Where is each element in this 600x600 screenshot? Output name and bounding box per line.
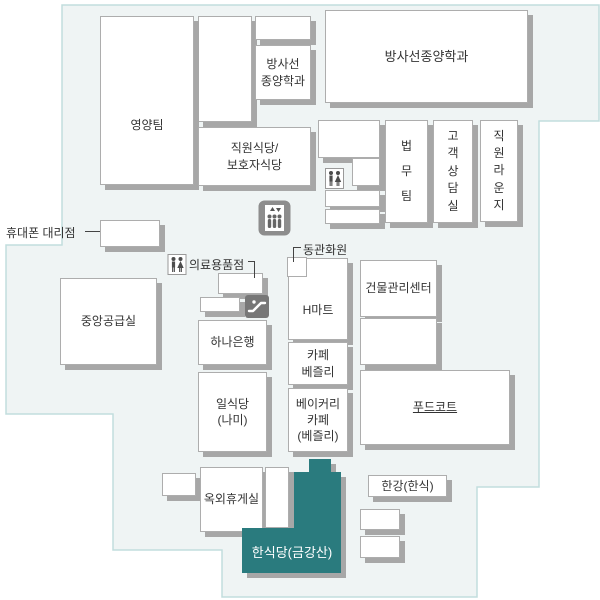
restroom-icon xyxy=(325,168,344,189)
callout-dongkwan-flower-shop: 동관화원 xyxy=(303,241,347,258)
callout-medical-supplies: 의료용품점 xyxy=(189,256,244,273)
elevator-icon xyxy=(258,200,291,236)
escalator-icon xyxy=(245,295,269,318)
floor-map: 영양팀 방사선 종양학과 직원식당/ 보호자식당 방사선종양학과 법 무 팀 고… xyxy=(0,0,600,600)
callout-connector xyxy=(248,261,255,278)
callout-connector xyxy=(85,231,100,232)
room-korean-restaurant-geumgangsan-shape[interactable] xyxy=(0,0,600,600)
callout-phone-store: 휴대폰 대리점 xyxy=(6,224,76,241)
restroom-icon xyxy=(167,254,187,275)
callout-connector xyxy=(293,247,301,262)
room-label-highlight: 한식당(금강산) xyxy=(242,542,342,561)
